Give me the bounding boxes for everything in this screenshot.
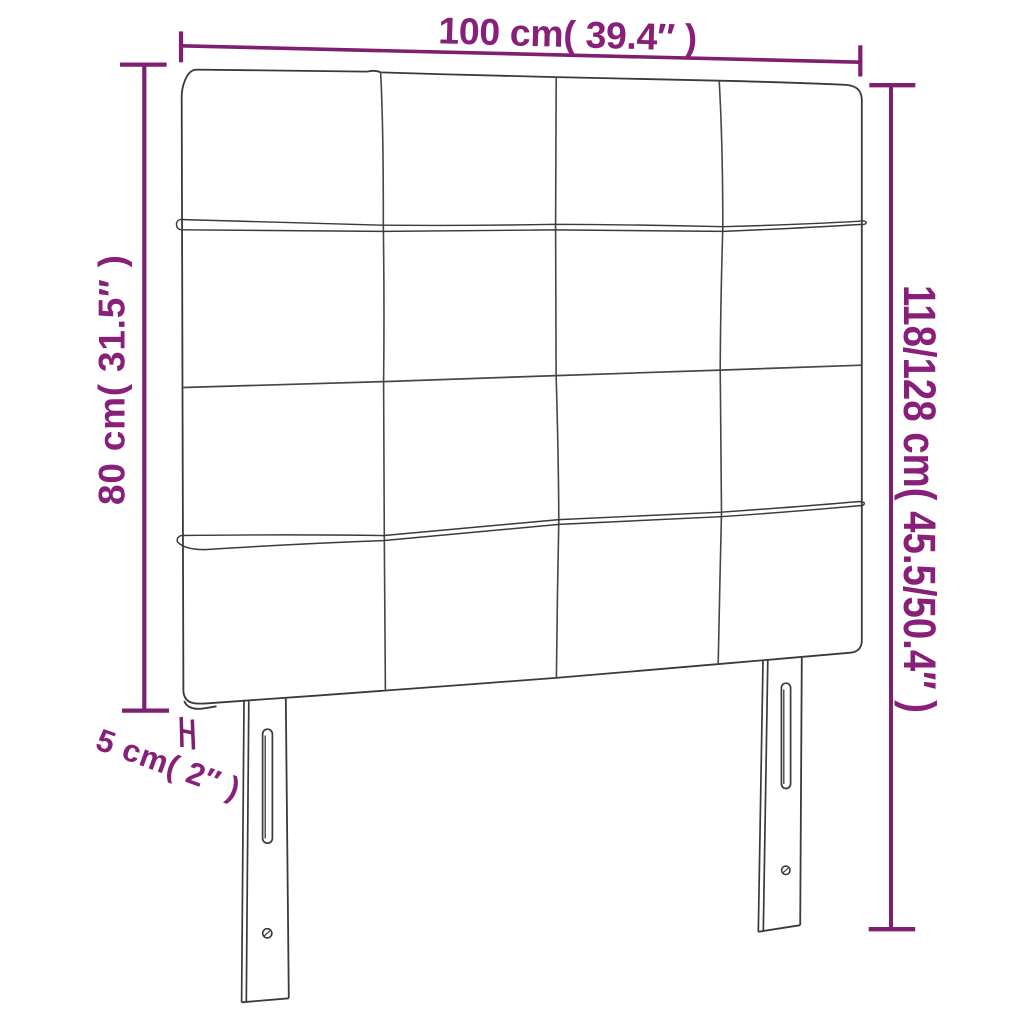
svg-text:80 cm( 31.5″ ): 80 cm( 31.5″ ): [92, 255, 133, 505]
svg-text:100 cm( 39.4″ ): 100 cm( 39.4″ ): [438, 9, 698, 58]
svg-text:118/128 cm( 45.5/50.4″ ): 118/128 cm( 45.5/50.4″ ): [894, 285, 945, 713]
